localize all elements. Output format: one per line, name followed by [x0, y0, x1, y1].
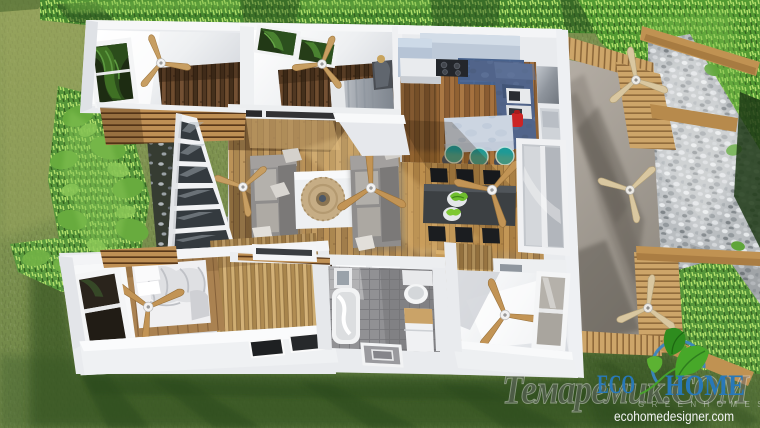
svg-text:ECO: ECO [597, 370, 635, 399]
svg-text:G R E E N H O M E S: G R E E N H O M E S [638, 400, 760, 409]
svg-text:HOME: HOME [665, 369, 745, 402]
svg-text:ecohomedesigner.com: ecohomedesigner.com [614, 409, 734, 425]
